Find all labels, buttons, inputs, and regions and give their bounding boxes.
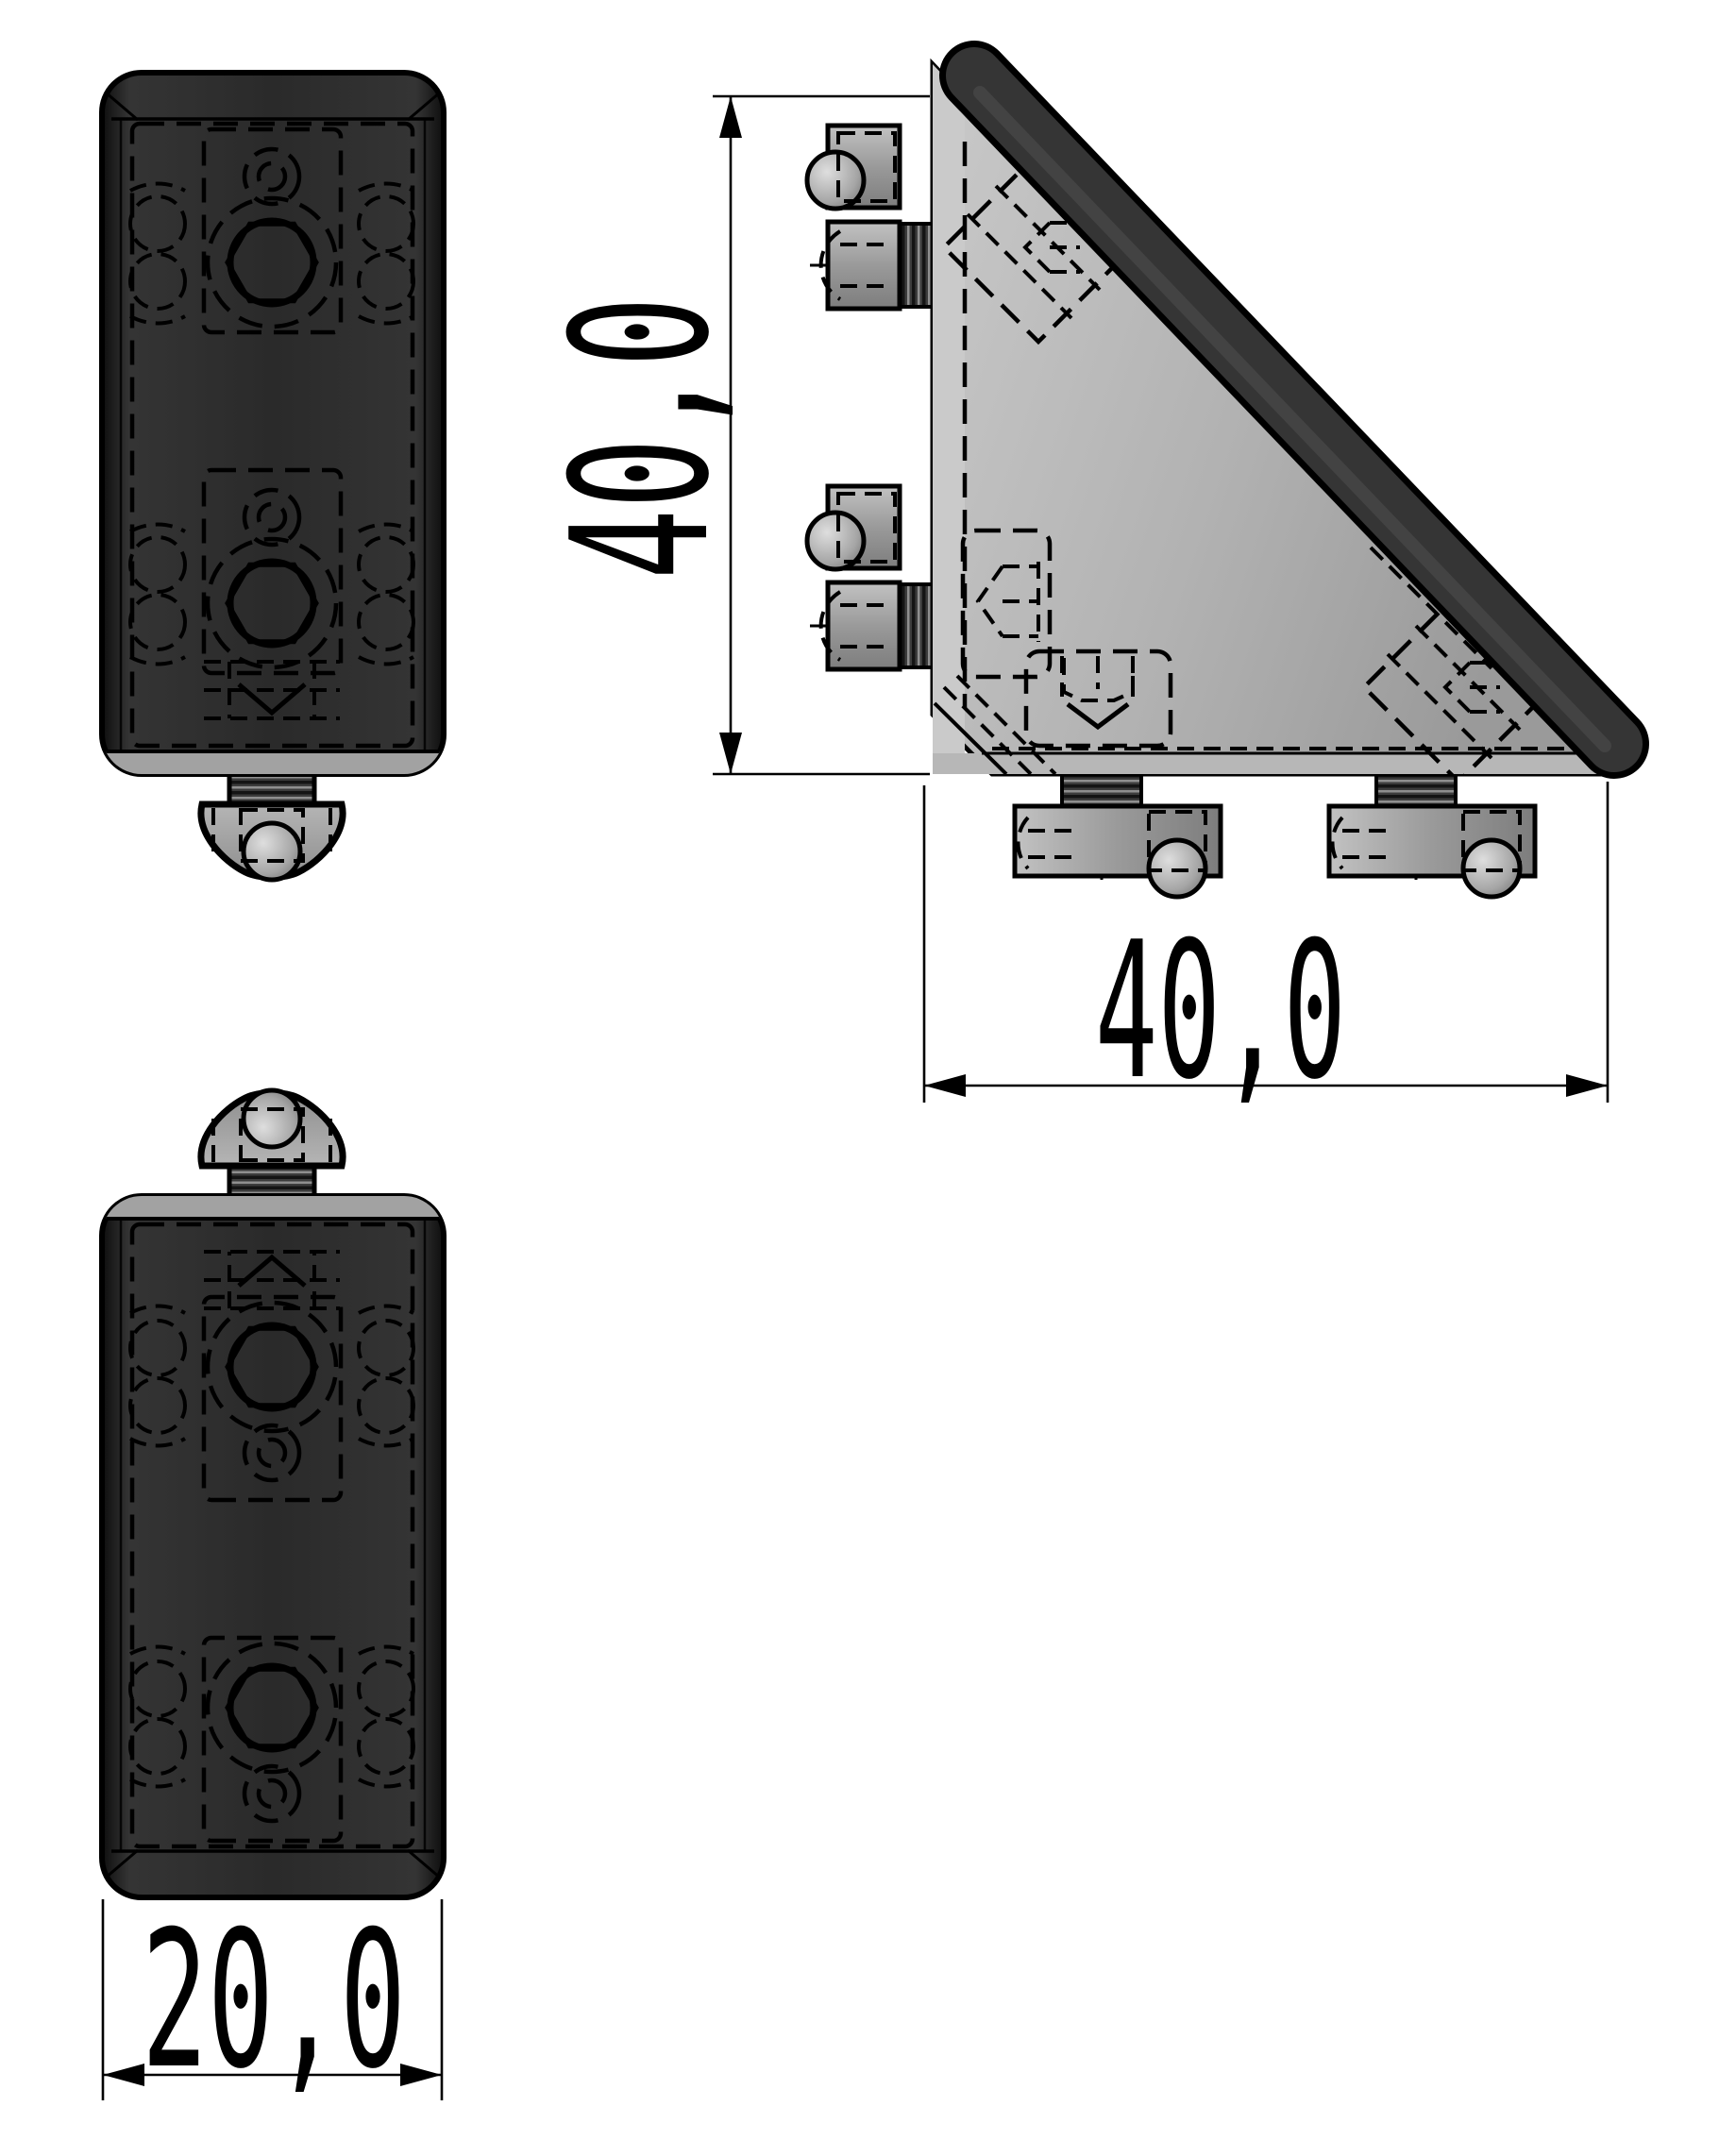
dimension-depth-20: 20,0 [103,1891,442,2111]
arrowhead-right [1566,1074,1608,1097]
arrowhead-right [400,2064,442,2086]
view-top [98,73,447,880]
end-cap-strip [98,751,447,776]
dimension-label-height: 40,0 [531,296,751,580]
end-cap-strip [98,1194,447,1219]
arrowhead-down [719,733,742,774]
tslot-tab-top [201,1090,343,1200]
dimension-label-width: 40,0 [1095,901,1346,1121]
arrowhead-left [924,1074,966,1097]
technical-drawing-canvas: 40,0 40,0 20,0 [0,0,1736,2140]
view-bottom [98,1090,447,1897]
tslot-tab-bottom [201,770,343,880]
arrowhead-left [103,2064,144,2086]
view-side-triangle [807,64,1614,897]
arrowhead-up [719,96,742,138]
drawing-page: 40,0 40,0 20,0 [0,0,1736,2140]
dimension-label-depth: 20,0 [142,1891,406,2111]
top-view-body [102,73,444,774]
bottom-view-body [102,1196,444,1897]
